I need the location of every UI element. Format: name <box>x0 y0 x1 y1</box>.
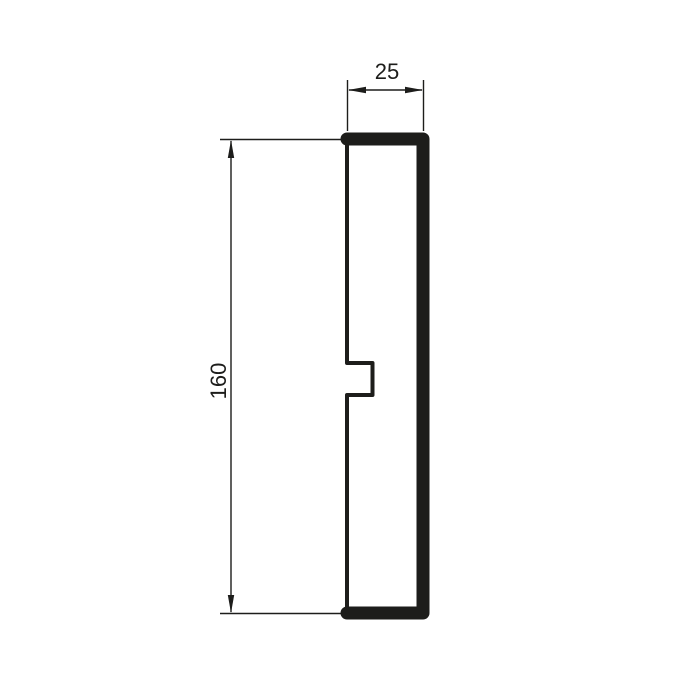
arrowhead-left-icon <box>348 87 366 93</box>
profile-outline-thick <box>347 139 423 613</box>
height-dimension-label: 160 <box>206 363 231 400</box>
technical-drawing: 25 160 <box>0 0 686 686</box>
width-dimension-label: 25 <box>375 59 399 84</box>
arrowhead-down-icon <box>228 595 234 613</box>
arrowhead-up-icon <box>228 140 234 158</box>
width-dimension: 25 <box>348 59 424 131</box>
arrowhead-right-icon <box>405 87 423 93</box>
profile-back-edge-with-groove <box>347 140 373 612</box>
drawing-canvas: 25 160 <box>0 0 686 686</box>
profile-cross-section <box>347 139 423 613</box>
height-dimension: 160 <box>206 140 342 614</box>
